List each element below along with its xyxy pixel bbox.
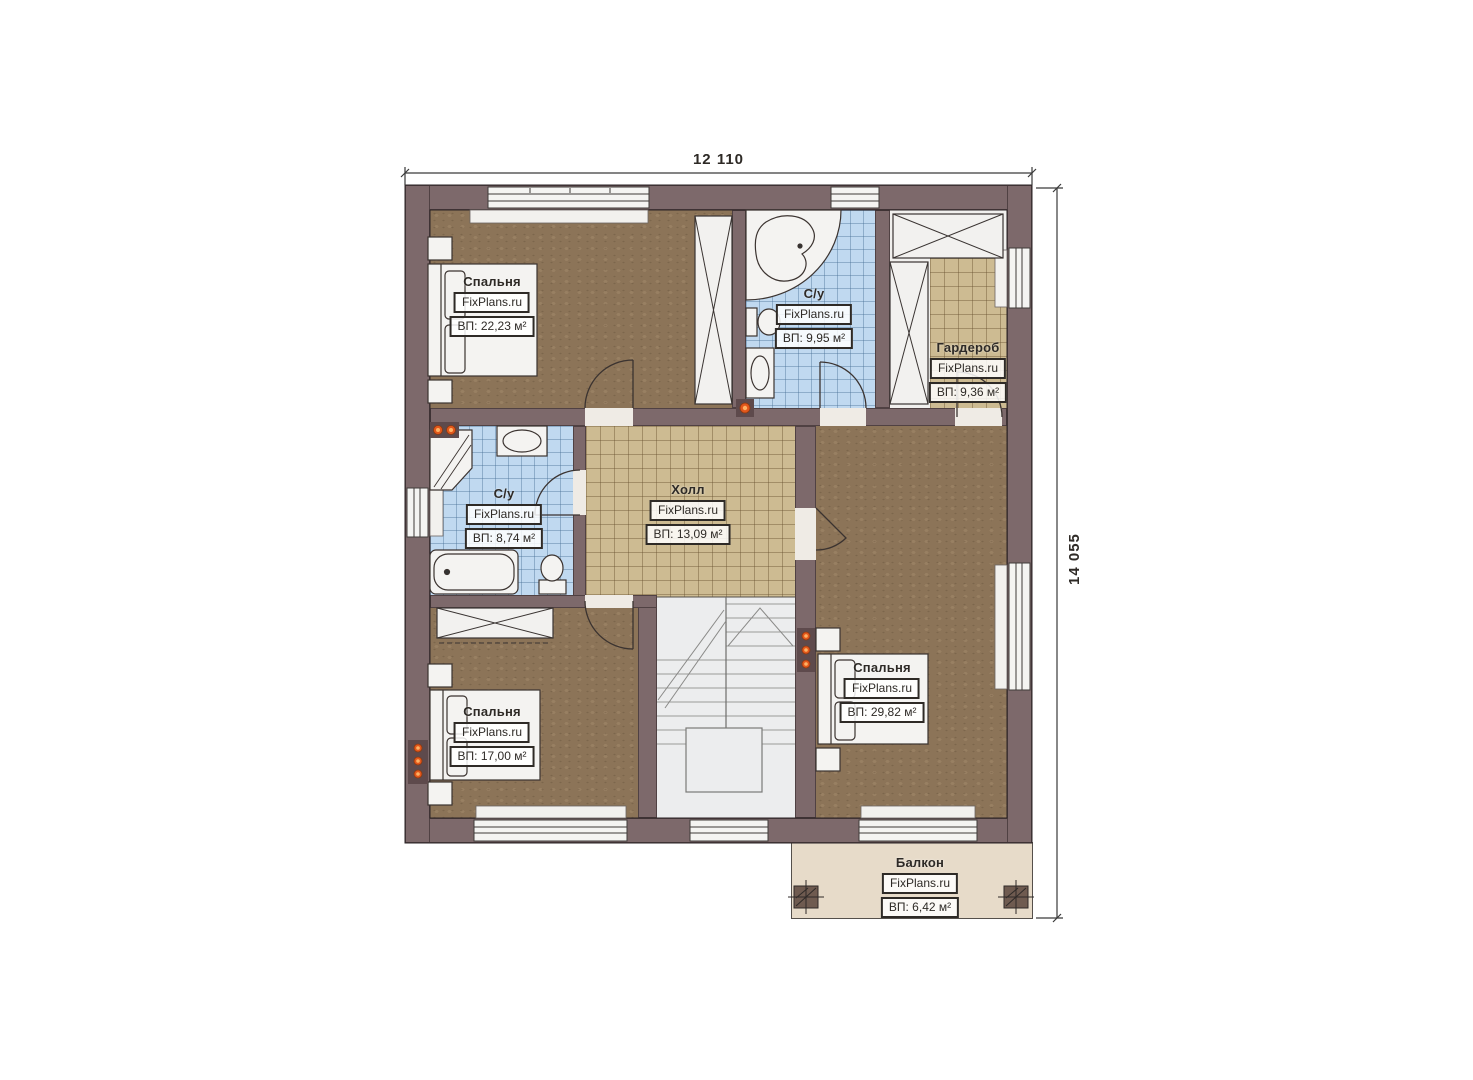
watermark-box: FixPlans.ru xyxy=(930,358,1006,379)
label-bedroom-top-left: Спальня FixPlans.ru ВП: 22,23 м² xyxy=(450,274,535,337)
area-box: ВП: 9,36 м² xyxy=(929,382,1007,403)
wall-inner-hall-bedroom-right xyxy=(795,426,816,818)
watermark-box: FixPlans.ru xyxy=(466,504,542,525)
wall-outer-top xyxy=(405,185,1032,210)
area-box: ВП: 29,82 м² xyxy=(840,702,925,723)
door-opening-bedroom-right xyxy=(795,508,816,560)
label-balcony: Балкон FixPlans.ru ВП: 6,42 м² xyxy=(881,855,959,918)
area-box: ВП: 9,95 м² xyxy=(775,328,853,349)
room-name: Спальня xyxy=(450,704,535,719)
door-opening-bedroom-bottom xyxy=(585,595,633,608)
room-name: Спальня xyxy=(450,274,535,289)
dimension-line-width xyxy=(401,167,1036,185)
watermark-box: FixPlans.ru xyxy=(844,678,920,699)
room-bedroom-right-floor xyxy=(816,426,1007,818)
area-box: ВП: 17,00 м² xyxy=(450,746,535,767)
room-name: Холл xyxy=(646,482,731,497)
area-box: ВП: 22,23 м² xyxy=(450,316,535,337)
wall-outer-left xyxy=(405,185,430,843)
area-box: ВП: 6,42 м² xyxy=(881,897,959,918)
label-bathroom-left: С/у FixPlans.ru ВП: 8,74 м² xyxy=(465,486,543,549)
room-name: С/у xyxy=(775,286,853,301)
door-opening-bathroom-left xyxy=(573,470,586,515)
label-bedroom-right: Спальня FixPlans.ru ВП: 29,82 м² xyxy=(840,660,925,723)
area-box: ВП: 8,74 м² xyxy=(465,528,543,549)
dimension-height-label: 14 055 xyxy=(1066,533,1083,585)
label-hall: Холл FixPlans.ru ВП: 13,09 м² xyxy=(646,482,731,545)
label-bathroom-top: С/у FixPlans.ru ВП: 9,95 м² xyxy=(775,286,853,349)
watermark-box: FixPlans.ru xyxy=(650,500,726,521)
label-bedroom-bottom-left: Спальня FixPlans.ru ВП: 17,00 м² xyxy=(450,704,535,767)
area-box: ВП: 13,09 м² xyxy=(646,524,731,545)
wall-outer-right xyxy=(1007,185,1032,843)
wall-outer-bottom xyxy=(405,818,1032,843)
room-name: Спальня xyxy=(840,660,925,675)
wall-inner-horizontal-main xyxy=(430,408,1007,426)
floor-plan: Спальня FixPlans.ru ВП: 22,23 м² С/у Fix… xyxy=(0,0,1473,1080)
watermark-box: FixPlans.ru xyxy=(776,304,852,325)
wall-inner-bathroom-wardrobe xyxy=(875,210,890,408)
wall-inner-bedroom1-bathroom xyxy=(732,210,746,408)
stairwell-floor xyxy=(657,597,795,818)
door-opening-wardrobe xyxy=(955,408,1002,426)
watermark-box: FixPlans.ru xyxy=(454,292,530,313)
label-wardrobe: Гардероб FixPlans.ru ВП: 9,36 м² xyxy=(929,340,1007,403)
room-name: Балкон xyxy=(881,855,959,870)
watermark-box: FixPlans.ru xyxy=(882,873,958,894)
room-name: С/у xyxy=(465,486,543,501)
door-opening-bedroom-top-left xyxy=(585,408,633,426)
watermark-box: FixPlans.ru xyxy=(454,722,530,743)
dimension-width-label: 12 110 xyxy=(405,151,1032,168)
room-name: Гардероб xyxy=(929,340,1007,355)
dimension-line-height xyxy=(1036,184,1063,922)
door-opening-bathroom-top xyxy=(820,408,866,426)
wall-inner-bedroom-stairs xyxy=(638,597,657,818)
